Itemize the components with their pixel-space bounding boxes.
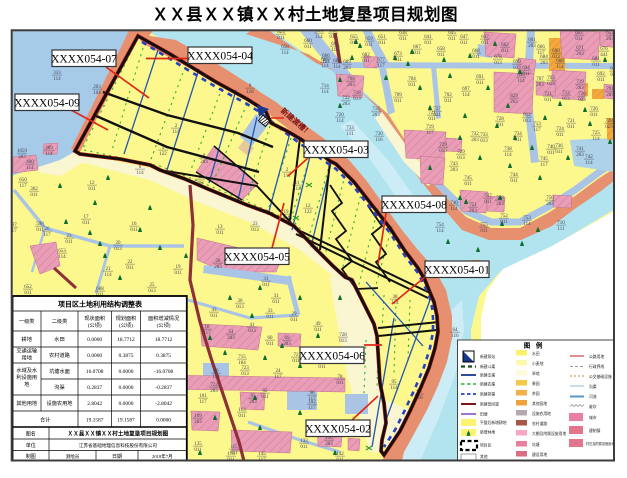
svg-text:公交基础设施: 公交基础设施: [589, 374, 612, 379]
svg-text:011: 011: [350, 41, 358, 46]
svg-text:011: 011: [304, 45, 312, 50]
svg-text:测绘员: 测绘员: [66, 453, 80, 460]
svg-text:117: 117: [533, 128, 541, 133]
svg-text:114: 114: [333, 65, 341, 70]
svg-text:耕地: 耕地: [22, 335, 32, 343]
svg-text:011: 011: [126, 266, 134, 271]
svg-text:图名: 图名: [26, 431, 36, 438]
svg-text:单位: 单位: [26, 442, 36, 449]
svg-text:XXXX054-03: XXXX054-03: [303, 145, 369, 157]
svg-text:011: 011: [575, 37, 583, 42]
svg-text:0.0000: 0.0000: [87, 353, 102, 359]
svg-text:203: 203: [469, 209, 477, 214]
svg-text:011: 011: [590, 113, 598, 118]
svg-text:16.0708: 16.0708: [86, 369, 104, 375]
svg-text:项目区土地利用结构调整表: 项目区土地利用结构调整表: [58, 300, 143, 309]
svg-text:011: 011: [238, 414, 246, 419]
svg-text:111: 111: [346, 132, 354, 137]
svg-text:(公顷): (公顷): [119, 321, 133, 329]
svg-text:其他用地: 其他用地: [16, 399, 37, 407]
svg-text:水田: 水田: [532, 351, 540, 356]
svg-text:203: 203: [536, 83, 544, 88]
svg-text:117: 117: [377, 64, 385, 69]
svg-text:-16.0708: -16.0708: [154, 369, 174, 375]
svg-text:203: 203: [194, 420, 202, 425]
svg-text:114: 114: [436, 229, 444, 234]
svg-text:011: 011: [378, 41, 386, 46]
svg-text:011: 011: [413, 51, 421, 56]
svg-text:114: 114: [556, 65, 564, 70]
svg-text:水田: 水田: [54, 335, 64, 343]
svg-text:011: 011: [408, 83, 416, 88]
svg-text:田埂: 田埂: [480, 412, 488, 417]
svg-text:沟渠: 沟渠: [54, 383, 64, 391]
svg-text:023: 023: [605, 125, 613, 130]
svg-text:011: 011: [500, 220, 508, 225]
svg-text:设施农用地: 设施农用地: [47, 399, 73, 407]
svg-text:013: 013: [114, 247, 122, 252]
svg-text:0.0000: 0.0000: [119, 401, 134, 407]
svg-text:其他园地: 其他园地: [532, 401, 547, 406]
svg-text:农村道路: 农村道路: [532, 421, 547, 426]
svg-text:011: 011: [472, 55, 480, 60]
svg-text:陡坎: 陡坎: [589, 404, 597, 409]
svg-text:城市: 城市: [589, 415, 597, 420]
svg-text:203: 203: [342, 102, 350, 107]
svg-text:011: 011: [336, 381, 344, 386]
svg-text:规划面积: 规划面积: [116, 314, 137, 322]
svg-text:XXXX054-01: XXXX054-01: [424, 265, 490, 277]
svg-text:建制镇: 建制镇: [589, 428, 601, 433]
svg-text:013: 013: [353, 97, 361, 102]
svg-text:村庄及附属设施用地: 村庄及附属设施用地: [586, 441, 615, 446]
svg-text:011: 011: [496, 123, 504, 128]
svg-text:011: 011: [556, 133, 564, 138]
svg-text:011: 011: [365, 43, 373, 48]
svg-text:坑塘: 坑塘: [532, 442, 540, 447]
svg-text:013: 013: [248, 329, 256, 334]
svg-text:114: 114: [592, 137, 600, 142]
svg-text:(公顷): (公顷): [88, 321, 102, 329]
svg-text:117: 117: [19, 184, 27, 189]
svg-text:011: 011: [318, 365, 326, 370]
svg-text:18.7712: 18.7712: [155, 337, 173, 343]
svg-text:114: 114: [523, 222, 531, 227]
svg-text:011: 011: [261, 395, 269, 400]
svg-text:011: 011: [30, 193, 38, 198]
svg-text:011: 011: [88, 187, 96, 192]
svg-text:011: 011: [484, 200, 492, 205]
svg-text:011: 011: [476, 81, 484, 86]
svg-text:011: 011: [65, 240, 73, 245]
svg-text:011: 011: [547, 151, 555, 156]
svg-text:011: 011: [544, 98, 552, 103]
svg-text:0.3875: 0.3875: [156, 353, 171, 359]
svg-text:203: 203: [214, 265, 222, 270]
svg-text:013: 013: [513, 66, 521, 71]
svg-text:114: 114: [331, 48, 339, 53]
svg-text:011: 011: [428, 117, 436, 122]
svg-text:0.0000: 0.0000: [119, 385, 134, 391]
svg-text:011: 011: [444, 99, 452, 104]
svg-text:114: 114: [450, 207, 458, 212]
svg-text:011: 011: [130, 228, 138, 233]
svg-text:011: 011: [300, 445, 308, 450]
svg-text:114: 114: [212, 375, 220, 380]
svg-text:203: 203: [450, 168, 458, 173]
svg-text:011: 011: [174, 271, 182, 276]
svg-text:新建田间道: 新建田间道: [480, 402, 499, 407]
svg-text:011: 011: [82, 221, 90, 226]
svg-text:011: 011: [272, 300, 280, 305]
svg-text:203: 203: [200, 160, 208, 165]
svg-text:203: 203: [18, 155, 26, 160]
svg-text:011: 011: [266, 315, 274, 320]
svg-text:203: 203: [576, 153, 584, 158]
svg-text:013: 013: [339, 339, 347, 344]
svg-text:011: 011: [36, 228, 44, 233]
svg-text:011: 011: [501, 49, 509, 54]
svg-text:旱地: 旱地: [532, 371, 540, 376]
svg-text:114: 114: [104, 273, 112, 278]
svg-text:其他: 其他: [480, 454, 488, 459]
svg-text:XXXX054-08: XXXX054-08: [381, 200, 447, 212]
svg-text:19.1587: 19.1587: [86, 418, 104, 424]
svg-text:441: 441: [600, 53, 608, 58]
svg-text:011: 011: [394, 99, 402, 104]
svg-text:011: 011: [329, 35, 337, 40]
svg-text:203: 203: [471, 138, 479, 143]
svg-text:项目区: 项目区: [480, 443, 492, 448]
svg-text:117: 117: [540, 163, 548, 168]
svg-text:011: 011: [597, 78, 605, 83]
svg-text:XXXX054-05: XXXX054-05: [224, 252, 290, 264]
svg-text:011: 011: [210, 314, 218, 319]
svg-text:(公顷): (公顷): [157, 321, 171, 329]
svg-text:011: 011: [266, 342, 274, 347]
svg-text:011: 011: [424, 41, 432, 46]
svg-text:011: 011: [460, 41, 468, 46]
svg-text:ＸＸ县ＸＸ镇ＸＸ村土地复垦项目规划图: ＸＸ县ＸＸ镇ＸＸ村土地复垦项目规划图: [152, 4, 458, 24]
svg-text:011: 011: [277, 36, 285, 41]
svg-text:新建排渠: 新建排渠: [480, 392, 495, 397]
svg-text:农村道路: 农村道路: [49, 351, 71, 359]
svg-text:0.0000: 0.0000: [87, 337, 102, 343]
svg-text:二级类: 二级类: [52, 317, 68, 325]
svg-text:117: 117: [308, 406, 316, 411]
svg-text:203: 203: [210, 389, 218, 394]
svg-text:203: 203: [343, 66, 351, 71]
svg-text:0.2837: 0.2837: [87, 385, 102, 391]
svg-text:203: 203: [249, 400, 257, 405]
svg-text:河流: 河流: [589, 394, 597, 399]
svg-text:新建农渠: 新建农渠: [480, 382, 495, 387]
svg-text:新建泵站: 新建泵站: [480, 354, 495, 359]
svg-text:114: 114: [504, 153, 512, 158]
svg-text:114: 114: [45, 152, 53, 157]
svg-text:0.0000: 0.0000: [119, 369, 134, 375]
svg-text:117: 117: [203, 331, 211, 336]
svg-text:日期: 日期: [112, 454, 122, 460]
svg-text:制图: 制图: [26, 453, 36, 460]
svg-text:203: 203: [372, 113, 380, 118]
svg-text:114: 114: [26, 166, 34, 171]
svg-text:沟渠: 沟渠: [589, 384, 597, 389]
svg-text:设施农用地: 设施农用地: [532, 411, 551, 416]
svg-text:0.3875: 0.3875: [119, 353, 134, 359]
svg-text:013: 013: [494, 61, 502, 66]
svg-text:013: 013: [148, 289, 156, 294]
svg-text:203: 203: [510, 100, 518, 105]
svg-text:水域及水: 水域及水: [16, 366, 38, 374]
svg-text:图 例: 图 例: [524, 341, 545, 350]
svg-text:203: 203: [227, 336, 235, 341]
svg-text:大棚及附属设施用地: 大棚及附属设施用地: [532, 431, 566, 436]
svg-text:XXXX054-04: XXXX054-04: [187, 51, 253, 63]
svg-text:203: 203: [540, 61, 548, 66]
svg-text:合计: 合计: [40, 416, 50, 424]
svg-text:114: 114: [585, 161, 593, 166]
svg-text:一级类: 一级类: [19, 317, 35, 325]
svg-text:行政界线: 行政界线: [589, 364, 604, 369]
svg-text:011: 011: [399, 37, 407, 42]
svg-text:122: 122: [159, 152, 167, 157]
svg-text:114: 114: [315, 35, 323, 40]
svg-text:114: 114: [53, 77, 61, 82]
svg-text:2018年7月: 2018年7月: [152, 453, 173, 460]
svg-text:114: 114: [321, 64, 329, 69]
svg-text:011: 011: [290, 318, 298, 323]
svg-text:023: 023: [578, 98, 586, 103]
svg-text:XXXX054-02: XXXX054-02: [305, 424, 371, 436]
svg-text:203: 203: [496, 202, 504, 207]
svg-text:011: 011: [592, 63, 600, 68]
svg-text:118: 118: [246, 90, 254, 95]
svg-text:-2.8042: -2.8042: [155, 401, 172, 407]
svg-text:新增林地: 新增林地: [480, 430, 495, 435]
svg-text:ＸＸ县ＸＸ镇ＸＸ村土地复垦项目规划图: ＸＸ县ＸＸ镇ＸＸ村土地复垦项目规划图: [68, 430, 169, 438]
svg-text:面积增减情况: 面积增减情况: [148, 314, 180, 322]
svg-text:用地: 用地: [22, 354, 32, 362]
svg-text:011: 011: [555, 150, 563, 155]
svg-text:011: 011: [464, 182, 472, 187]
svg-text:新建斗渠: 新建斗渠: [480, 364, 495, 369]
svg-text:建设用地: 建设用地: [532, 452, 547, 457]
svg-text:011: 011: [514, 138, 522, 143]
svg-text:公路用地: 公路用地: [589, 354, 604, 359]
svg-text:116: 116: [375, 138, 383, 143]
svg-text:XXXX054-06: XXXX054-06: [299, 351, 365, 363]
svg-text:104: 104: [93, 91, 101, 96]
svg-text:0.0000: 0.0000: [156, 418, 171, 424]
svg-text:122: 122: [304, 210, 312, 215]
svg-text:203: 203: [283, 342, 291, 347]
svg-text:011: 011: [216, 231, 224, 236]
svg-text:现状面积: 现状面积: [84, 314, 105, 322]
svg-text:江苏省基础地理信息科技股份有限公司: 江苏省基础地理信息科技股份有限公司: [79, 442, 158, 449]
svg-text:114: 114: [321, 90, 329, 95]
svg-text:011: 011: [481, 41, 489, 46]
svg-text:平整后新增耕地: 平整后新增耕地: [480, 420, 507, 425]
svg-text:023: 023: [547, 82, 555, 87]
svg-text:坑塘水面: 坑塘水面: [49, 367, 70, 375]
svg-text:203: 203: [528, 44, 536, 49]
svg-text:交通运输: 交通运输: [16, 347, 38, 355]
svg-text:203: 203: [347, 83, 355, 88]
svg-text:011: 011: [194, 448, 202, 453]
svg-text:203: 203: [576, 86, 584, 91]
svg-text:013: 013: [457, 156, 465, 161]
svg-text:011: 011: [567, 125, 575, 130]
svg-text:011: 011: [362, 59, 370, 64]
svg-text:011: 011: [480, 229, 488, 234]
svg-text:114: 114: [462, 93, 470, 98]
svg-text:011: 011: [510, 179, 518, 184]
svg-text:013: 013: [439, 149, 447, 154]
svg-text:117: 117: [199, 400, 207, 405]
svg-text:011: 011: [314, 328, 322, 333]
svg-text:011: 011: [262, 283, 270, 288]
svg-text:114: 114: [136, 171, 144, 176]
svg-text:小麦地: 小麦地: [532, 361, 544, 366]
svg-text:果园: 果园: [532, 381, 540, 386]
svg-text:-0.2837: -0.2837: [155, 385, 172, 391]
svg-text:117: 117: [274, 375, 282, 380]
svg-text:013: 013: [523, 119, 531, 124]
svg-text:203: 203: [325, 442, 333, 447]
svg-text:013: 013: [236, 305, 244, 310]
svg-text:114: 114: [281, 51, 289, 56]
svg-text:114: 114: [336, 119, 344, 124]
svg-text:114: 114: [517, 79, 525, 84]
svg-text:XXXX054-07: XXXX054-07: [51, 54, 117, 66]
svg-text:013: 013: [251, 228, 259, 233]
svg-text:011: 011: [448, 37, 456, 42]
svg-text:利设施用: 利设施用: [16, 373, 37, 381]
svg-text:114: 114: [58, 255, 66, 260]
svg-text:117: 117: [426, 131, 434, 136]
svg-text:地: 地: [24, 380, 29, 388]
svg-text:2.8042: 2.8042: [87, 401, 102, 407]
svg-text:茶园: 茶园: [532, 391, 540, 396]
svg-text:117: 117: [43, 233, 51, 238]
svg-text:203: 203: [576, 52, 584, 57]
svg-text:XXXX054-09: XXXX054-09: [14, 98, 80, 110]
svg-text:18.7712: 18.7712: [117, 337, 135, 343]
svg-text:011: 011: [394, 58, 402, 63]
svg-text:新建支渠: 新建支渠: [480, 373, 495, 378]
svg-text:013: 013: [480, 139, 488, 144]
svg-text:111: 111: [557, 227, 565, 232]
svg-text:011: 011: [437, 53, 445, 58]
svg-text:203: 203: [546, 202, 554, 207]
svg-text:013: 013: [562, 97, 570, 102]
svg-text:19.1587: 19.1587: [117, 418, 135, 424]
svg-text:013: 013: [241, 372, 249, 377]
svg-text:116: 116: [451, 334, 459, 339]
